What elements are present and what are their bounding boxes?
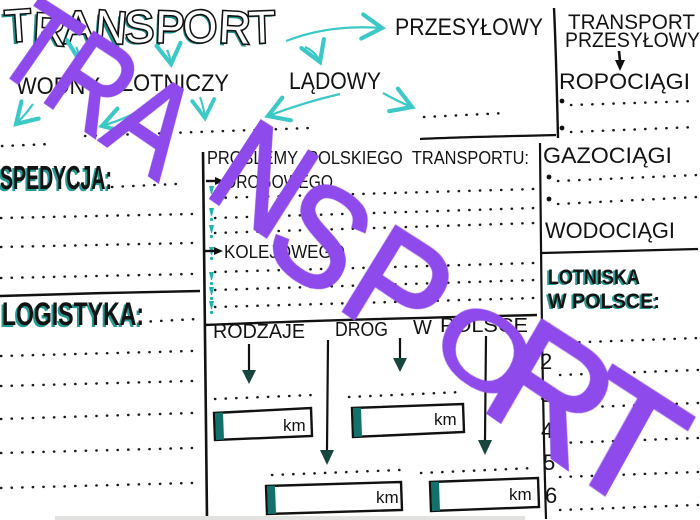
svg-text:km: km bbox=[509, 485, 532, 504]
svg-text:LOGISTYKA:: LOGISTYKA: bbox=[2, 296, 144, 332]
svg-text:LOTNISKA: LOTNISKA bbox=[548, 266, 640, 289]
svg-text:GAZOCIĄGI: GAZOCIĄGI bbox=[543, 143, 672, 168]
svg-text:WODOCIĄGI: WODOCIĄGI bbox=[545, 218, 675, 243]
svg-text:ROPOCIĄGI: ROPOCIĄGI bbox=[559, 69, 690, 94]
svg-text:PRZESYŁOWY: PRZESYŁOWY bbox=[565, 29, 700, 52]
svg-text:km: km bbox=[283, 416, 306, 435]
svg-text:PRZESYŁOWY: PRZESYŁOWY bbox=[395, 14, 543, 41]
svg-text:km: km bbox=[376, 488, 399, 507]
svg-text:LĄDOWY: LĄDOWY bbox=[289, 68, 381, 95]
svg-text:RODZAJE: RODZAJE bbox=[213, 321, 305, 343]
